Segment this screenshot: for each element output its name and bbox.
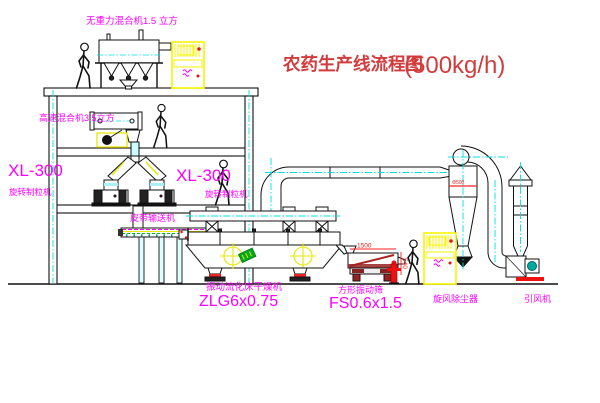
dryer-foot <box>290 268 310 281</box>
diagram-title-capacity: (500kg/h) <box>404 52 505 79</box>
label-cyclone: 旋风除尘器 <box>433 293 478 304</box>
indicator-dot-icon <box>160 195 162 197</box>
worker-figure <box>154 104 167 147</box>
indicator-dot-icon <box>197 75 200 78</box>
fan-motor-icon <box>528 262 537 271</box>
label-granulator-left-model: XL-300 <box>8 161 63 180</box>
dim-cyclone-dia: Φ500 <box>452 180 465 186</box>
diagram-svg: 无重力混合机1.5 立方 高速混合机3.5立方 XL-300 旋转制粒机 XL-… <box>0 0 600 403</box>
motor-pulley-icon <box>103 136 112 145</box>
cyclone-dust-collector <box>448 146 508 270</box>
y-chute <box>108 156 166 182</box>
dryer-foot <box>205 268 225 281</box>
label-granulator-left-name: 旋转制粒机 <box>9 187 52 197</box>
fluid-bed-dryer <box>179 207 350 281</box>
label-granulator-mid-name: 旋转制粒机 <box>205 189 248 199</box>
gravity-free-mixer <box>95 30 171 89</box>
roof-slab <box>44 88 258 96</box>
control-cabinet-ground <box>424 233 456 284</box>
mid-slab <box>50 148 246 156</box>
label-dryer-model: ZLG6x0.75 <box>199 293 278 310</box>
indicator-dot-icon <box>449 262 452 265</box>
diagram-title: 农药生产线流程图 <box>282 54 423 74</box>
label-sieve-name: 方形振动筛 <box>338 284 383 295</box>
label-belt-conveyor: 皮带输送机 <box>130 212 175 223</box>
label-sieve-model: FS0.6x1.5 <box>329 295 402 312</box>
bellows-icon <box>206 221 328 232</box>
dim-sieve-length: 1500 <box>357 243 372 250</box>
worker-figure <box>77 43 91 88</box>
exhaust-stack <box>509 162 532 256</box>
label-high-speed-mixer: 高速混合机3.5立方 <box>39 112 115 123</box>
indicator-dot-icon <box>197 47 201 51</box>
label-gravity-mixer: 无重力混合机1.5 立方 <box>86 15 178 27</box>
label-granulator-mid-model: XL-300 <box>176 166 231 185</box>
rotary-granulators <box>92 180 176 206</box>
label-fan: 引风机 <box>524 293 551 304</box>
dim-sieve-height: 540 <box>401 258 408 269</box>
cad-flow-diagram: 无重力混合机1.5 立方 高速混合机3.5立方 XL-300 旋转制粒机 XL-… <box>0 0 600 403</box>
indicator-dot-icon <box>449 239 453 243</box>
label-dryer-name: 振动流化床干燥机 <box>206 281 283 293</box>
control-cabinet-top <box>172 42 204 88</box>
indicator-dot-icon <box>114 195 116 197</box>
induced-draft-fan <box>506 256 544 281</box>
fan-base <box>516 277 544 281</box>
